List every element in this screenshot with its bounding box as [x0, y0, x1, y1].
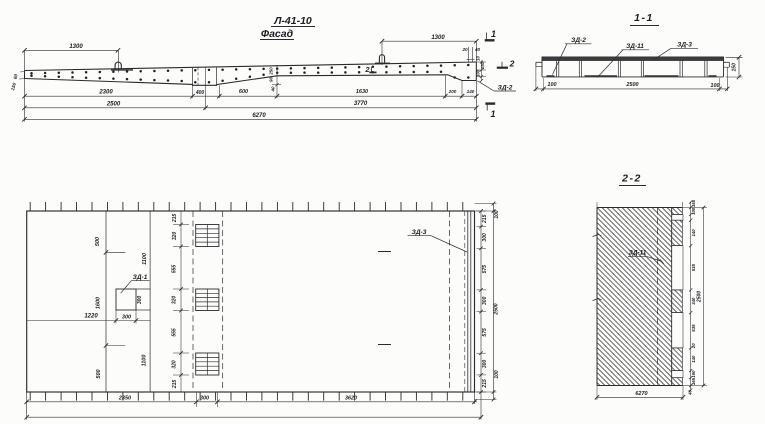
svg-text:1: 1	[490, 109, 495, 119]
svg-text:1600: 1600	[96, 297, 102, 309]
svg-text:2500: 2500	[494, 303, 500, 315]
svg-text:300: 300	[482, 233, 488, 242]
svg-text:400: 400	[195, 90, 205, 96]
svg-text:40: 40	[271, 86, 276, 92]
svg-text:60: 60	[12, 73, 18, 80]
svg-text:200: 200	[448, 89, 457, 94]
svg-text:1100: 1100	[142, 355, 148, 367]
svg-text:ЗД-3: ЗД-3	[412, 229, 427, 236]
svg-text:215: 215	[482, 379, 488, 389]
svg-text:215: 215	[172, 214, 178, 224]
svg-text:300: 300	[482, 296, 488, 305]
svg-text:165: 165	[691, 199, 696, 207]
svg-text:320: 320	[172, 232, 178, 241]
svg-text:40: 40	[688, 390, 693, 396]
svg-text:100: 100	[494, 370, 500, 379]
svg-text:ЗД-2: ЗД-2	[498, 85, 513, 92]
svg-text:100: 100	[494, 210, 500, 219]
svg-text:140: 140	[467, 89, 475, 94]
svg-text:2350: 2350	[118, 395, 131, 401]
svg-text:1100: 1100	[142, 253, 148, 265]
svg-text:215: 215	[172, 380, 178, 390]
svg-text:ЗД-3: ЗД-3	[677, 42, 692, 49]
svg-text:1300: 1300	[431, 35, 445, 41]
svg-text:90: 90	[269, 77, 274, 82]
svg-text:575: 575	[482, 328, 488, 337]
svg-text:1630: 1630	[356, 89, 368, 95]
svg-text:20: 20	[691, 343, 696, 349]
svg-text:575: 575	[482, 265, 488, 274]
svg-text:100: 100	[691, 370, 696, 378]
svg-text:1: 1	[491, 29, 496, 39]
svg-text:320: 320	[172, 296, 178, 305]
svg-text:535: 535	[691, 264, 696, 272]
svg-text:2: 2	[509, 59, 515, 69]
svg-text:Л-41-10: Л-41-10	[273, 15, 312, 27]
svg-text:1300: 1300	[69, 44, 83, 50]
svg-text:320: 320	[172, 360, 178, 369]
svg-text:140: 140	[691, 229, 696, 237]
svg-text:3770: 3770	[354, 101, 368, 107]
svg-text:1220: 1220	[84, 314, 98, 320]
svg-text:6270: 6270	[635, 391, 647, 397]
svg-text:3620: 3620	[345, 395, 357, 401]
svg-text:500: 500	[95, 237, 101, 246]
svg-text:ЗД-1: ЗД-1	[133, 274, 148, 281]
svg-text:100: 100	[710, 83, 719, 89]
svg-text:100: 100	[691, 207, 696, 215]
svg-text:250: 250	[269, 67, 274, 76]
svg-text:100: 100	[547, 82, 556, 88]
svg-text:100: 100	[476, 69, 481, 77]
svg-text:600: 600	[239, 89, 248, 95]
svg-text:555: 555	[172, 328, 178, 337]
svg-text:10: 10	[476, 56, 481, 61]
svg-text:ЗД-11: ЗД-11	[626, 43, 644, 50]
svg-text:300: 300	[482, 360, 488, 369]
svg-text:2-2: 2-2	[621, 173, 642, 185]
svg-text:555: 555	[172, 265, 178, 274]
svg-text:2500: 2500	[625, 82, 638, 88]
svg-text:2500: 2500	[697, 291, 703, 303]
svg-text:150: 150	[731, 63, 737, 72]
svg-text:ЗД-11: ЗД-11	[629, 250, 647, 257]
svg-text:140: 140	[691, 355, 696, 363]
svg-text:20: 20	[461, 47, 468, 52]
svg-text:6270: 6270	[252, 113, 266, 119]
svg-text:40: 40	[474, 47, 481, 52]
svg-text:1-1: 1-1	[634, 12, 654, 24]
svg-text:ЗД-2: ЗД-2	[571, 37, 586, 44]
svg-text:150: 150	[10, 82, 17, 91]
svg-text:300: 300	[137, 296, 143, 305]
svg-text:2300: 2300	[98, 90, 113, 96]
svg-text:535: 535	[691, 324, 696, 332]
svg-text:340: 340	[691, 297, 696, 305]
svg-text:500: 500	[96, 369, 102, 378]
svg-text:2500: 2500	[106, 101, 121, 107]
svg-text:Фасад: Фасад	[261, 28, 294, 40]
svg-text:300: 300	[200, 396, 209, 402]
svg-text:165: 165	[691, 377, 696, 385]
svg-text:300: 300	[122, 314, 131, 320]
svg-text:215: 215	[482, 214, 488, 224]
